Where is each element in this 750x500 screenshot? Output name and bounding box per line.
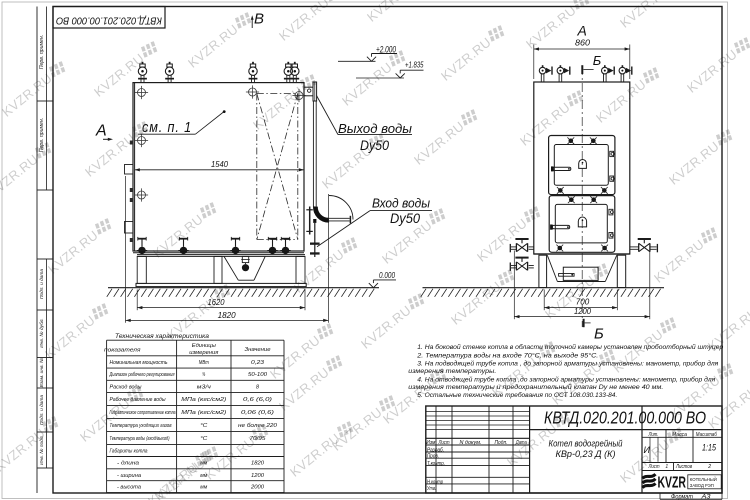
svg-text:1200: 1200 bbox=[574, 306, 591, 316]
svg-text:%: % bbox=[202, 372, 205, 378]
svg-text:КВТД.020.201.00.000 ВО: КВТД.020.201.00.000 ВО bbox=[56, 15, 162, 26]
svg-text:Диапазон рабочего регулировани: Диапазон рабочего регулирования bbox=[109, 372, 175, 378]
svg-text:KVZR.RU: KVZR.RU bbox=[523, 2, 579, 51]
svg-text:Подп.: Подп. bbox=[495, 440, 508, 446]
svg-text:- длина: - длина bbox=[117, 461, 140, 467]
svg-text:см. п. 1: см. п. 1 bbox=[142, 120, 192, 136]
svg-text:KVZR.RU: KVZR.RU bbox=[517, 99, 573, 148]
svg-text:Номинальная мощность: Номинальная мощность bbox=[110, 360, 168, 366]
svg-text:50-100: 50-100 bbox=[248, 372, 268, 378]
svg-text:Вход воды: Вход воды bbox=[372, 197, 430, 211]
svg-text:В: В bbox=[254, 10, 264, 27]
svg-text:1:15: 1:15 bbox=[702, 442, 717, 452]
svg-text:5. Остальные технические треб: 5. Остальные технические требования по О… bbox=[417, 392, 617, 399]
svg-text:KVZR.RU: KVZR.RU bbox=[593, 76, 649, 125]
svg-text:2: 2 bbox=[707, 464, 711, 470]
svg-text:м3/ч: м3/ч bbox=[197, 384, 211, 390]
svg-text:Масштаб: Масштаб bbox=[696, 432, 717, 438]
svg-text:Б: Б bbox=[594, 325, 604, 342]
svg-text:измерения температуры.: измерения температуры. bbox=[408, 368, 496, 375]
svg-text:МПа (кгс/см2): МПа (кгс/см2) bbox=[181, 410, 226, 416]
svg-text:N докум.: N докум. bbox=[460, 440, 482, 446]
svg-text:- ширина: - ширина bbox=[117, 473, 142, 479]
svg-text:1. На боковой стенке котла в: 1. На боковой стенке котла в области топ… bbox=[417, 344, 724, 351]
svg-text:1820: 1820 bbox=[218, 310, 236, 320]
svg-text:мм: мм bbox=[200, 485, 207, 491]
svg-text:KVZR.RU: KVZR.RU bbox=[684, 46, 740, 95]
svg-text:А: А bbox=[95, 122, 107, 139]
svg-text:1200: 1200 bbox=[251, 473, 265, 479]
svg-text:КВр-0,23 Д (К): КВр-0,23 Д (К) bbox=[556, 449, 616, 460]
svg-text:1540: 1540 bbox=[211, 159, 228, 169]
svg-text:860: 860 bbox=[575, 37, 590, 47]
svg-text:KVZR.RU: KVZR.RU bbox=[411, 118, 467, 167]
svg-text:Перв. примен.: Перв. примен. bbox=[39, 35, 45, 69]
svg-text:KVZR.RU: KVZR.RU bbox=[651, 236, 707, 285]
svg-text:KVZR.RU: KVZR.RU bbox=[666, 138, 722, 187]
svg-text:KVZR.RU: KVZR.RU bbox=[0, 151, 41, 200]
svg-text:Н.контр: Н.контр bbox=[427, 479, 443, 485]
svg-text:KVZR.RU: KVZR.RU bbox=[339, 59, 395, 108]
svg-text:KVZR.RU: KVZR.RU bbox=[82, 130, 138, 179]
svg-text:Инв. № дубл.: Инв. № дубл. bbox=[39, 318, 45, 348]
svg-text:°С: °С bbox=[200, 423, 208, 429]
svg-text:2. Температура воды на входе: 2. Температура воды на входе 70°С, на вы… bbox=[416, 352, 598, 359]
svg-text:Подп. и дата: Подп. и дата bbox=[39, 395, 45, 425]
svg-text:измерения: измерения bbox=[189, 350, 218, 356]
svg-text:KVZR.RU: KVZR.RU bbox=[42, 312, 98, 361]
svg-text:Значение: Значение bbox=[245, 347, 272, 353]
svg-text:+1.835: +1.835 bbox=[405, 60, 424, 70]
svg-text:KVZR.RU: KVZR.RU bbox=[319, 142, 375, 191]
svg-text:KVZR.RU: KVZR.RU bbox=[438, 34, 494, 83]
svg-text:0.000: 0.000 bbox=[379, 270, 395, 280]
svg-text:Изм: Изм bbox=[426, 440, 436, 446]
svg-text:0,23: 0,23 bbox=[251, 360, 265, 366]
svg-text:1: 1 bbox=[665, 464, 668, 470]
svg-text:Взам. инв. №: Взам. инв. № bbox=[39, 358, 45, 388]
svg-text:Выход воды: Выход воды bbox=[338, 122, 412, 136]
svg-text:Лит.: Лит. bbox=[648, 432, 659, 438]
svg-text:Техническая характеристика: Техническая характеристика bbox=[115, 333, 209, 340]
svg-text:показателя: показателя bbox=[104, 348, 141, 354]
svg-text:Температура уходящих газов: Температура уходящих газов bbox=[110, 423, 172, 429]
svg-text:КОТЕЛЬНЫЙ: КОТЕЛЬНЫЙ bbox=[690, 475, 717, 483]
svg-text:°С: °С bbox=[200, 436, 208, 442]
svg-text:3. На подводящей трубе котла: 3. На подводящей трубе котла , до запорн… bbox=[417, 360, 719, 367]
svg-text:ЗАВОД РЭП: ЗАВОД РЭП bbox=[690, 483, 714, 489]
svg-text:Т.контр.: Т.контр. bbox=[427, 461, 445, 467]
svg-text:Габариты котла: Габариты котла bbox=[110, 448, 149, 454]
svg-text:Б: Б bbox=[593, 53, 602, 68]
svg-text:Единицы: Единицы bbox=[192, 343, 217, 349]
svg-text:Разраб.: Разраб. bbox=[427, 447, 444, 453]
svg-text:Подп. и дата: Подп. и дата bbox=[39, 269, 45, 299]
svg-text:0,6 (6,0): 0,6 (6,0) bbox=[243, 397, 272, 403]
svg-text:KVZR.RU: KVZR.RU bbox=[364, 0, 420, 25]
svg-text:KVZR: KVZR bbox=[658, 474, 687, 491]
svg-text:А3: А3 bbox=[700, 494, 711, 500]
svg-text:0,06 (0,6): 0,06 (0,6) bbox=[241, 410, 274, 416]
svg-text:KVZR.RU: KVZR.RU bbox=[287, 430, 343, 479]
svg-text:- высота: - высота bbox=[117, 485, 142, 491]
svg-text:Лист: Лист bbox=[438, 440, 450, 446]
svg-text:А: А bbox=[577, 22, 587, 38]
svg-text:KVZR.RU: KVZR.RU bbox=[448, 278, 504, 327]
svg-text:+2.000: +2.000 bbox=[376, 45, 396, 55]
svg-text:Утв.: Утв. bbox=[427, 486, 436, 492]
svg-text:МПа (кгс/см2): МПа (кгс/см2) bbox=[181, 397, 226, 403]
svg-text:Температура воды (вход/выход): Температура воды (вход/выход) bbox=[110, 436, 170, 442]
svg-text:2000: 2000 bbox=[250, 485, 265, 491]
svg-text:измерения температуры и предох: измерения температуры и предохранительны… bbox=[408, 384, 663, 391]
svg-text:KVZR.RU: KVZR.RU bbox=[617, 0, 673, 31]
svg-text:KVZR.RU: KVZR.RU bbox=[358, 302, 414, 351]
svg-text:1820: 1820 bbox=[251, 461, 265, 467]
svg-text:8: 8 bbox=[256, 384, 260, 390]
svg-text:KVZR.RU: KVZR.RU bbox=[150, 211, 206, 260]
svg-text:Листов: Листов bbox=[675, 464, 692, 470]
svg-text:Формат: Формат bbox=[671, 494, 693, 500]
svg-text:KVZR.RU: KVZR.RU bbox=[185, 21, 241, 70]
svg-text:Пров.: Пров. bbox=[427, 454, 439, 460]
svg-text:МВт: МВт bbox=[199, 360, 209, 366]
